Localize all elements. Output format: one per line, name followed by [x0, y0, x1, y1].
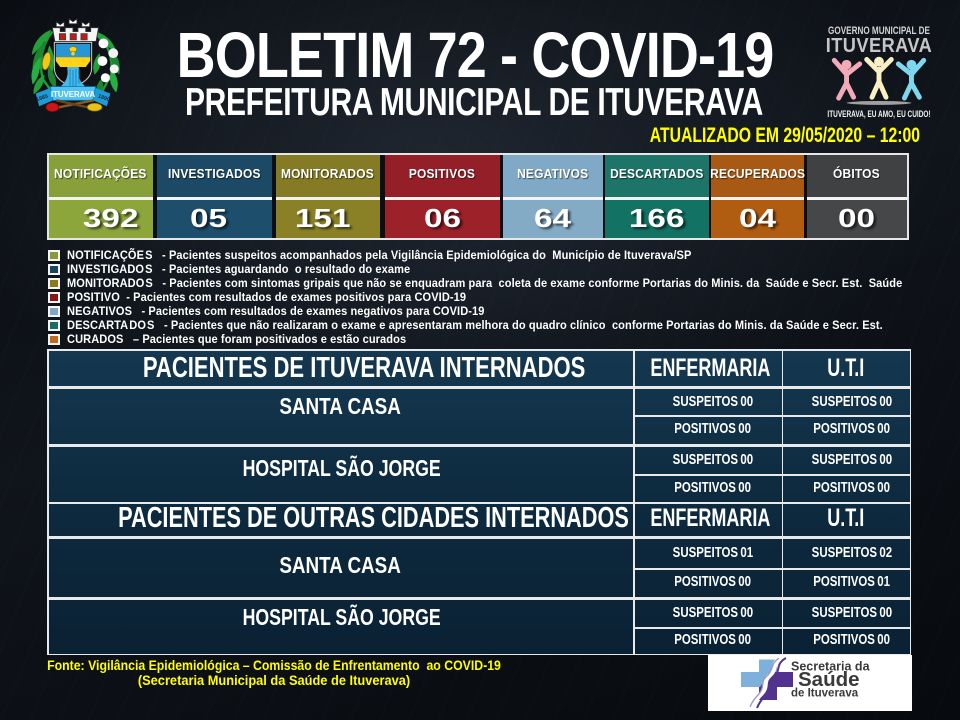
svg-text:de Ituverava: de Ituverava [791, 688, 859, 700]
svg-text:ITUVERAVA: ITUVERAVA [51, 90, 95, 99]
